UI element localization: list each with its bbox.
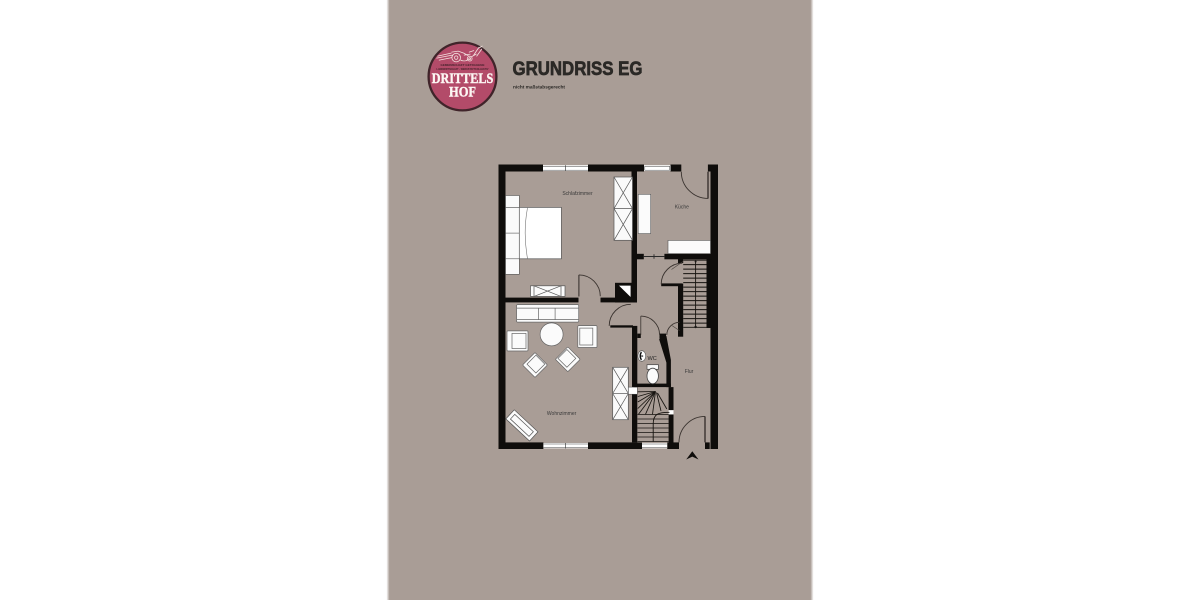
svg-text:Flur: Flur: [685, 369, 694, 375]
svg-text:Küche: Küche: [675, 205, 689, 211]
svg-text:Schlafzimmer: Schlafzimmer: [562, 191, 593, 197]
svg-text:HOF: HOF: [449, 84, 476, 100]
svg-text:Wohnzimmer: Wohnzimmer: [547, 411, 577, 417]
svg-text:WC: WC: [648, 356, 657, 362]
svg-text:nicht maßstabsgerecht: nicht maßstabsgerecht: [513, 85, 565, 91]
svg-text:GRUNDRISS EG: GRUNDRISS EG: [513, 58, 643, 80]
